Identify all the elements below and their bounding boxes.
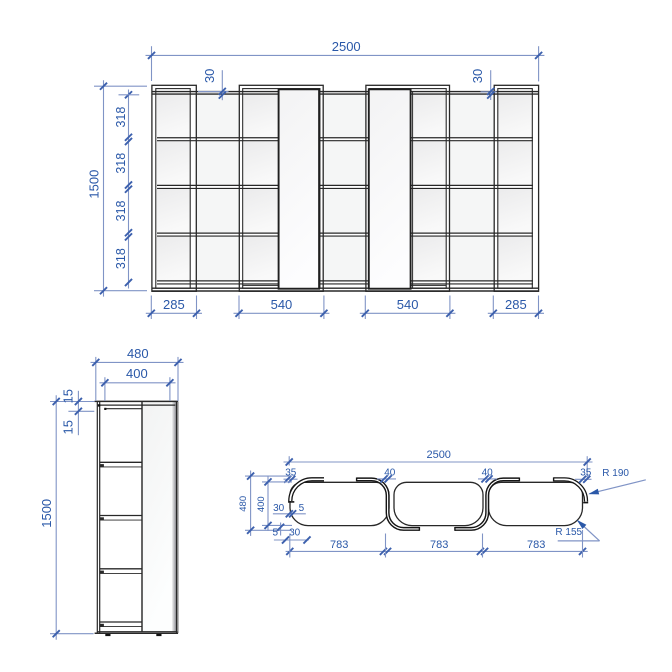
svg-text:480: 480	[238, 496, 249, 512]
svg-text:30: 30	[202, 69, 217, 83]
svg-text:35: 35	[285, 467, 297, 478]
svg-text:540: 540	[271, 297, 293, 312]
svg-text:15: 15	[61, 420, 76, 434]
svg-text:40: 40	[482, 467, 494, 478]
svg-text:5: 5	[299, 503, 305, 514]
svg-text:30: 30	[289, 527, 301, 538]
svg-text:30: 30	[273, 503, 285, 514]
svg-text:15: 15	[61, 389, 76, 403]
svg-text:400: 400	[256, 496, 267, 512]
svg-text:318: 318	[114, 248, 128, 269]
svg-text:285: 285	[163, 297, 185, 312]
svg-text:5: 5	[273, 527, 279, 538]
svg-text:40: 40	[384, 467, 396, 478]
svg-text:2500: 2500	[332, 39, 361, 54]
svg-text:783: 783	[527, 539, 545, 551]
svg-text:285: 285	[505, 297, 527, 312]
svg-text:783: 783	[430, 539, 448, 551]
svg-text:540: 540	[397, 297, 419, 312]
svg-text:35: 35	[580, 467, 592, 478]
svg-text:480: 480	[127, 346, 149, 361]
svg-text:400: 400	[126, 366, 148, 381]
svg-text:318: 318	[114, 200, 128, 221]
svg-text:30: 30	[470, 69, 485, 83]
svg-text:318: 318	[114, 107, 128, 128]
svg-text:1500: 1500	[39, 499, 54, 528]
svg-text:R 155: R 155	[555, 527, 582, 538]
svg-text:318: 318	[114, 153, 128, 174]
svg-text:R 190: R 190	[602, 468, 629, 479]
svg-text:783: 783	[330, 539, 348, 551]
svg-text:2500: 2500	[426, 449, 450, 461]
svg-text:1500: 1500	[86, 170, 101, 199]
